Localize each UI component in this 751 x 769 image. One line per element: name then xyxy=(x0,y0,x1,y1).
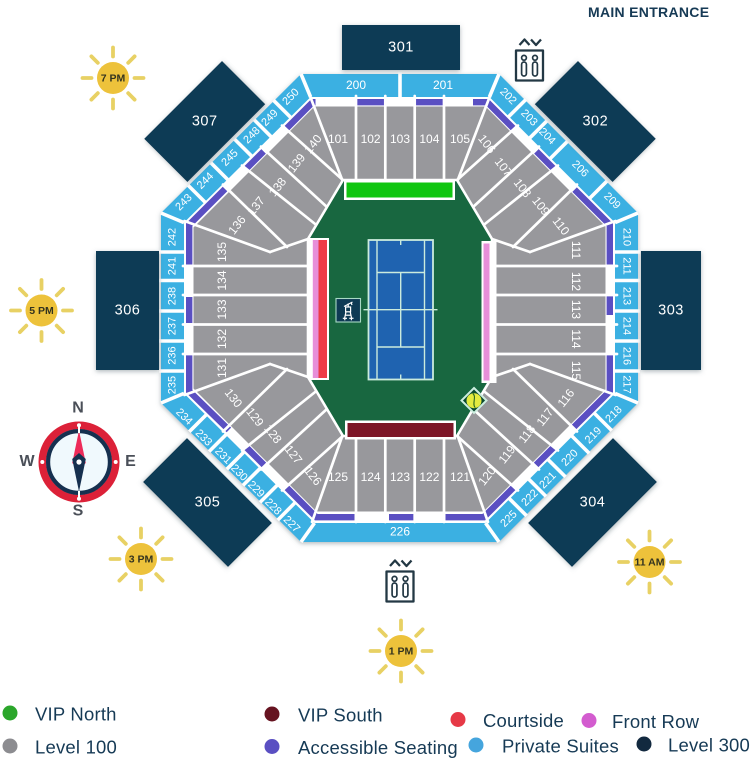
svg-text:216: 216 xyxy=(621,347,633,365)
svg-text:241: 241 xyxy=(167,257,179,275)
svg-text:302: 302 xyxy=(582,114,608,130)
svg-text:214: 214 xyxy=(621,317,633,335)
svg-text:102: 102 xyxy=(361,132,381,146)
svg-text:113: 113 xyxy=(569,300,583,319)
svg-text:304: 304 xyxy=(580,495,606,511)
svg-text:1 PM: 1 PM xyxy=(389,646,414,658)
svg-text:213: 213 xyxy=(621,287,633,305)
svg-text:11 AM: 11 AM xyxy=(635,557,665,569)
svg-text:S: S xyxy=(73,503,84,520)
svg-text:Front Row: Front Row xyxy=(612,711,700,732)
svg-text:305: 305 xyxy=(195,495,221,511)
svg-text:121: 121 xyxy=(450,470,470,484)
svg-text:W: W xyxy=(19,453,35,470)
svg-text:307: 307 xyxy=(192,114,218,130)
svg-text:VIP South: VIP South xyxy=(298,705,383,726)
svg-text:133: 133 xyxy=(215,299,229,319)
svg-text:125: 125 xyxy=(328,470,348,484)
svg-text:101: 101 xyxy=(328,132,348,146)
svg-text:211: 211 xyxy=(621,257,633,275)
svg-text:111: 111 xyxy=(569,241,583,260)
svg-text:Level 300: Level 300 xyxy=(668,735,750,756)
svg-text:VIP North: VIP North xyxy=(35,704,117,725)
svg-text:Level 100: Level 100 xyxy=(35,737,117,758)
svg-text:3 PM: 3 PM xyxy=(129,554,154,566)
svg-text:103: 103 xyxy=(390,132,410,146)
svg-text:210: 210 xyxy=(621,228,633,246)
svg-text:235: 235 xyxy=(167,376,179,394)
svg-text:7 PM: 7 PM xyxy=(101,73,126,85)
svg-text:238: 238 xyxy=(167,287,179,305)
svg-text:104: 104 xyxy=(419,132,439,146)
svg-text:105: 105 xyxy=(450,132,470,146)
svg-text:134: 134 xyxy=(215,270,229,290)
svg-text:303: 303 xyxy=(658,303,684,319)
svg-text:124: 124 xyxy=(361,470,381,484)
svg-text:131: 131 xyxy=(215,358,229,378)
svg-text:132: 132 xyxy=(215,329,229,349)
svg-text:226: 226 xyxy=(390,525,410,539)
svg-text:135: 135 xyxy=(215,242,229,262)
svg-text:Private Suites: Private Suites xyxy=(502,736,619,757)
svg-text:MAIN ENTRANCE: MAIN ENTRANCE xyxy=(588,4,709,20)
svg-text:123: 123 xyxy=(390,470,410,484)
svg-text:N: N xyxy=(72,400,84,417)
svg-text:200: 200 xyxy=(346,78,366,92)
svg-text:Courtside: Courtside xyxy=(483,710,564,731)
svg-text:E: E xyxy=(125,453,136,470)
svg-text:114: 114 xyxy=(569,329,583,348)
svg-text:112: 112 xyxy=(569,272,583,291)
svg-text:236: 236 xyxy=(167,346,179,364)
svg-text:5 PM: 5 PM xyxy=(29,305,54,317)
svg-text:217: 217 xyxy=(621,375,633,393)
svg-text:201: 201 xyxy=(433,78,453,92)
svg-text:237: 237 xyxy=(167,317,179,335)
svg-text:306: 306 xyxy=(115,303,141,319)
svg-text:301: 301 xyxy=(388,40,414,56)
svg-text:122: 122 xyxy=(419,470,439,484)
svg-text:242: 242 xyxy=(167,228,179,246)
svg-text:Accessible Seating: Accessible Seating xyxy=(298,737,458,758)
svg-text:115: 115 xyxy=(569,361,583,380)
